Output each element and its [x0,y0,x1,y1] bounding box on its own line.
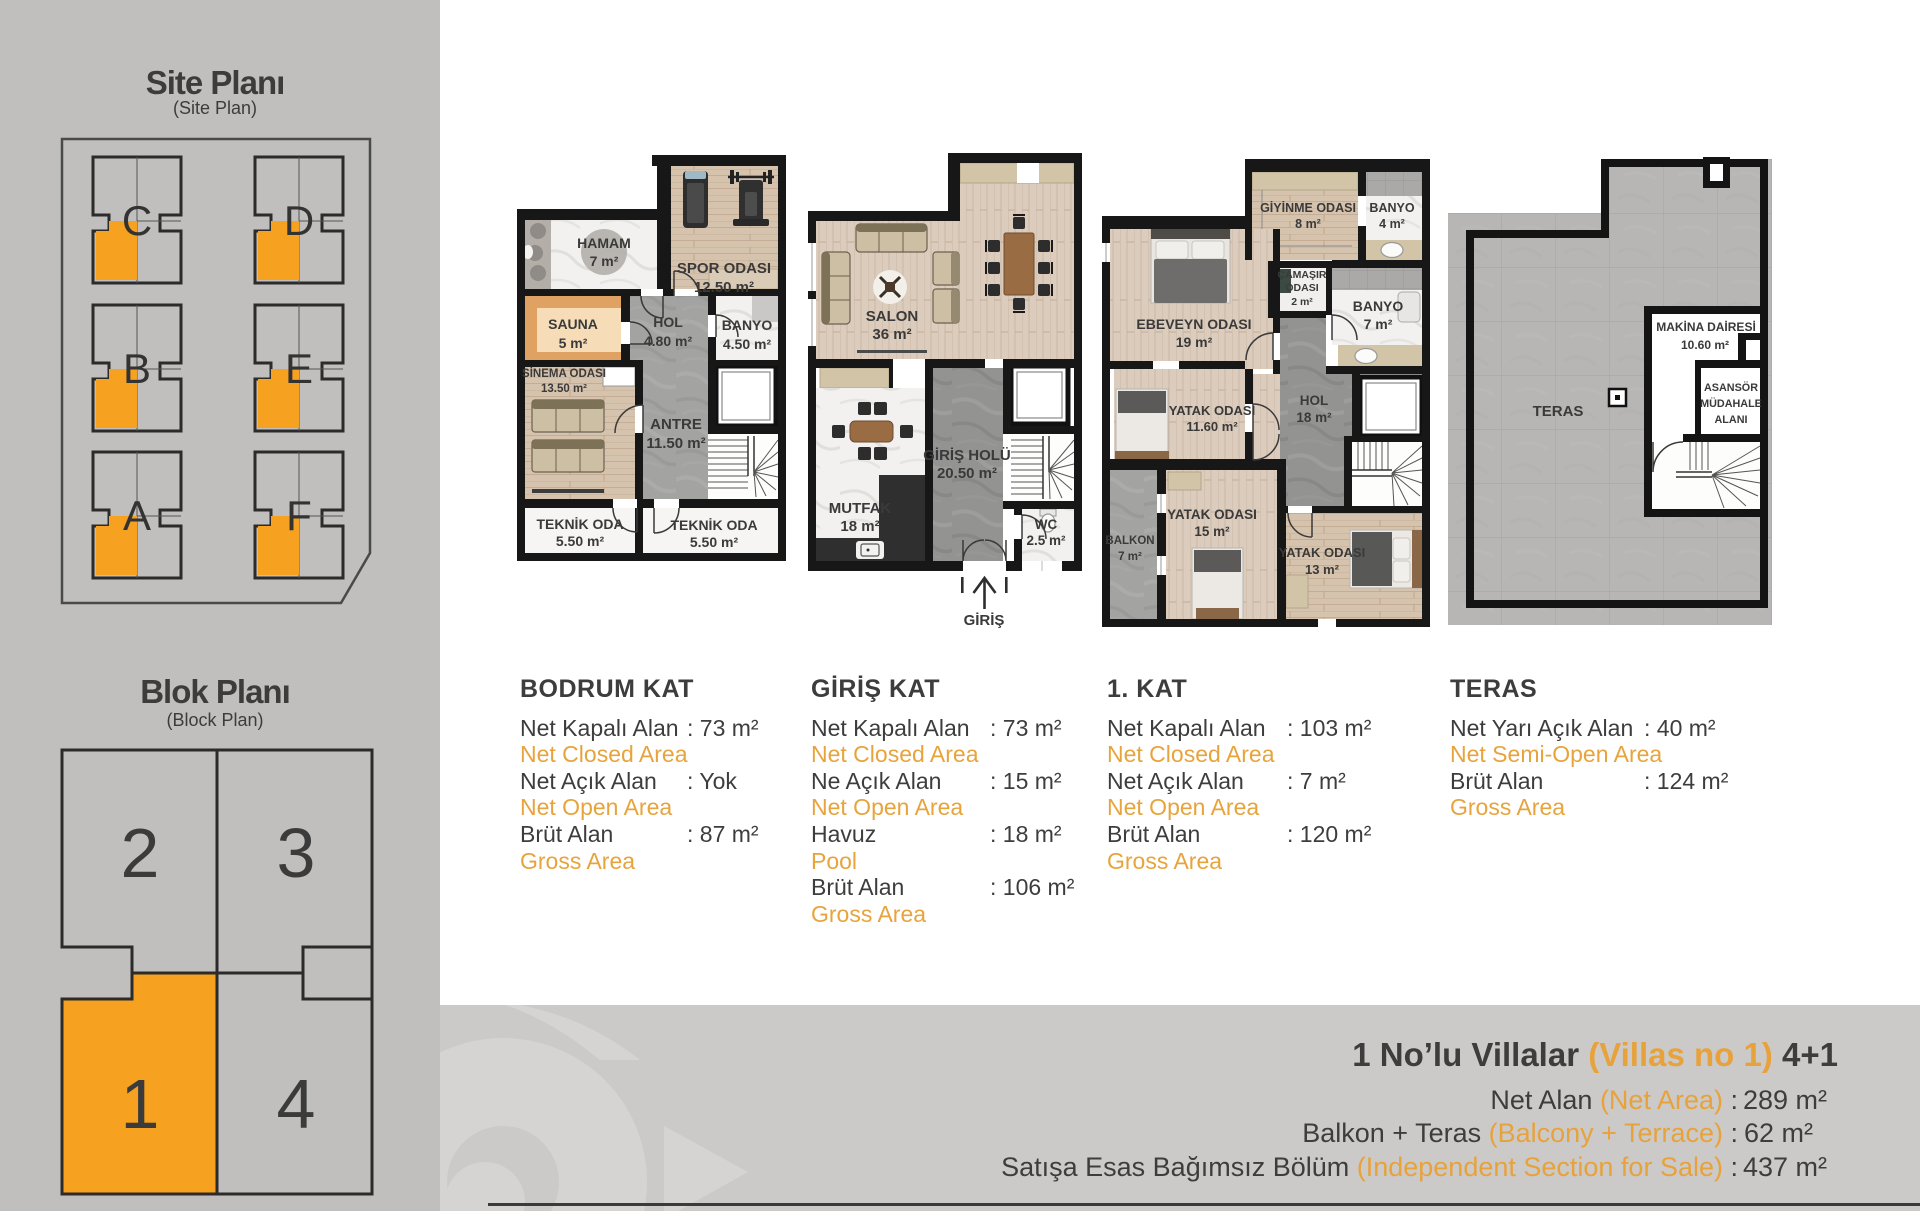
svg-text:12.50 m²: 12.50 m² [694,279,754,296]
svg-text:GİYİNME ODASI: GİYİNME ODASI [1260,200,1356,215]
svg-text:ODASI: ODASI [1285,282,1318,294]
svg-text:SAUNA: SAUNA [548,316,598,332]
svg-text:2 m²: 2 m² [1291,296,1313,308]
svg-text:MAKİNA DAİRESİ: MAKİNA DAİRESİ [1656,319,1756,334]
svg-text:SALON: SALON [866,308,919,325]
svg-text:TERAS: TERAS [1533,403,1584,420]
svg-text:MUTFAK: MUTFAK [829,500,892,517]
svg-text:5 m²: 5 m² [559,335,588,351]
svg-text:HOL: HOL [1300,393,1329,408]
svg-text:HAMAM: HAMAM [577,235,631,251]
svg-text:4.50 m²: 4.50 m² [723,336,772,352]
svg-text:36 m²: 36 m² [872,326,911,343]
svg-text:BALKON: BALKON [1105,535,1154,547]
svg-text:11.60 m²: 11.60 m² [1186,419,1238,434]
svg-text:13.50 m²: 13.50 m² [541,383,587,395]
svg-text:18 m²: 18 m² [840,518,879,535]
svg-text:5.50 m²: 5.50 m² [556,533,605,549]
svg-text:YATAK ODASI: YATAK ODASI [1279,545,1365,560]
svg-text:GİRİŞ HOLÜ: GİRİŞ HOLÜ [923,447,1011,464]
svg-text:4 m²: 4 m² [1379,217,1405,231]
svg-text:15 m²: 15 m² [1194,524,1230,539]
svg-text:13 m²: 13 m² [1305,562,1340,577]
svg-text:MÜDAHALE: MÜDAHALE [1700,397,1762,410]
svg-text:TEKNİK ODA: TEKNİK ODA [670,517,757,533]
svg-text:7 m²: 7 m² [590,253,619,269]
svg-text:20.50 m²: 20.50 m² [937,465,997,482]
svg-text:EBEVEYN ODASI: EBEVEYN ODASI [1136,316,1251,332]
svg-text:5.50 m²: 5.50 m² [690,534,739,550]
svg-text:ASANSÖR: ASANSÖR [1704,381,1758,394]
svg-text:HOL: HOL [653,314,683,330]
svg-text:7 m²: 7 m² [1364,316,1393,332]
svg-text:SİNEMA ODASI: SİNEMA ODASI [522,367,606,380]
svg-text:GİRİŞ: GİRİŞ [964,612,1005,629]
svg-text:ANTRE: ANTRE [650,416,702,433]
svg-text:WC: WC [1035,517,1058,532]
svg-text:8 m²: 8 m² [1295,217,1321,231]
svg-text:10.60 m²: 10.60 m² [1681,338,1729,352]
svg-text:2.5 m²: 2.5 m² [1026,533,1066,548]
svg-text:19 m²: 19 m² [1176,334,1213,350]
svg-text:7 m²: 7 m² [1118,551,1142,563]
svg-text:11.50 m²: 11.50 m² [646,435,705,452]
svg-text:YATAK ODASI: YATAK ODASI [1167,507,1257,522]
svg-text:BANYO: BANYO [1369,201,1414,215]
svg-text:18 m²: 18 m² [1296,410,1332,425]
svg-text:BANYO: BANYO [722,317,773,333]
svg-text:ALANI: ALANI [1715,414,1748,426]
svg-text:YATAK ODASI: YATAK ODASI [1169,403,1255,418]
svg-text:BANYO: BANYO [1353,298,1404,314]
svg-text:TEKNİK ODA: TEKNİK ODA [536,516,623,532]
svg-text:ÇAMAŞIR: ÇAMAŞIR [1278,269,1327,281]
svg-text:4.80 m²: 4.80 m² [644,333,693,349]
svg-text:SPOR ODASI: SPOR ODASI [677,260,771,277]
